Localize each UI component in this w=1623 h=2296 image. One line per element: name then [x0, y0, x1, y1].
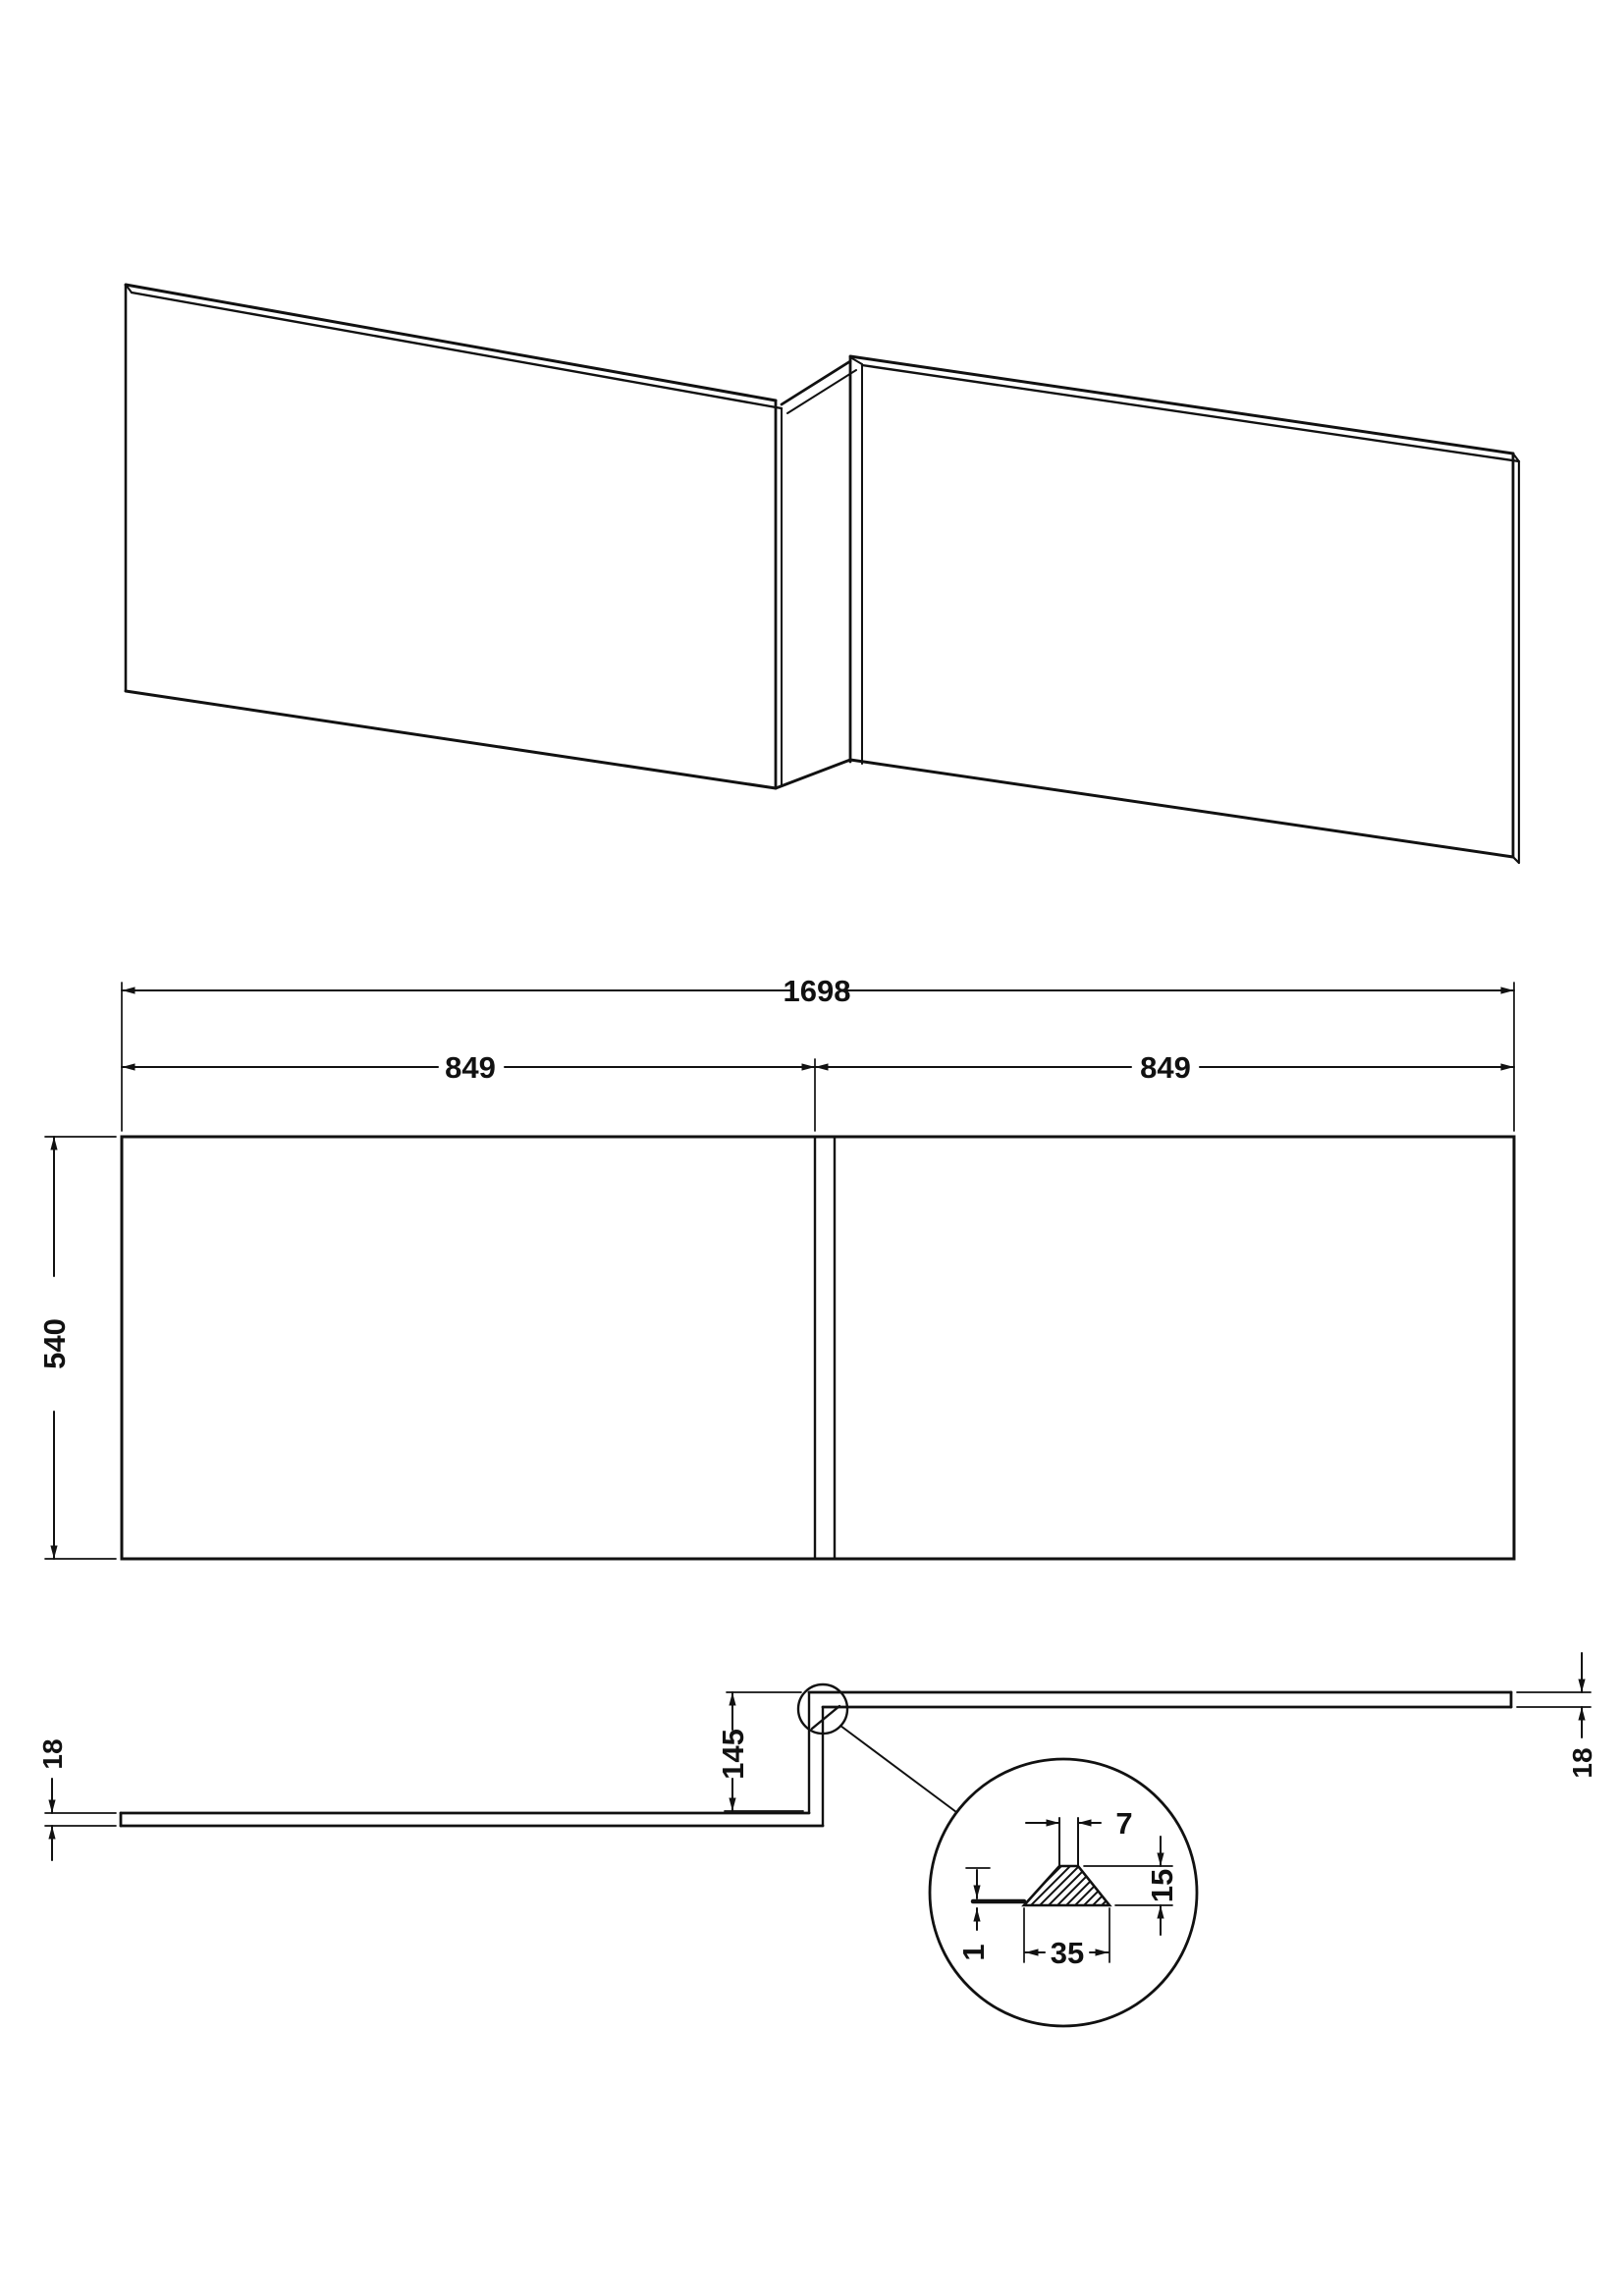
elevation-panel-outline: [122, 1137, 1514, 1559]
detail-view-labels: 7 15 35 1: [956, 1806, 1179, 1970]
dim-label-block-width: 35: [1051, 1936, 1084, 1970]
front-elevation-labels: 1698 849 849 540: [37, 974, 1191, 1369]
dim-label-right-panel-width: 849: [1140, 1050, 1191, 1085]
dim-label-block-height: 15: [1145, 1869, 1179, 1902]
dim-label-overall-width: 1698: [784, 974, 851, 1008]
dim-label-return-depth: 145: [716, 1729, 750, 1780]
technical-drawing-canvas: 1698 849 849 540: [0, 0, 1623, 2296]
plan-view: [45, 1653, 1591, 1860]
front-elevation-view: [45, 983, 1514, 1559]
dim-label-right-thickness: 18: [1567, 1747, 1597, 1778]
dim-label-height: 540: [37, 1318, 72, 1369]
drawing-sheet: 1698 849 849 540: [0, 0, 1623, 2296]
dim-label-top-gap: 7: [1115, 1806, 1132, 1841]
dim-label-left-thickness: 18: [37, 1738, 68, 1769]
dim-label-left-panel-width: 849: [445, 1050, 496, 1085]
dim-label-edge-offset: 1: [956, 1944, 991, 1960]
plan-view-labels: 18 18 145: [37, 1729, 1597, 1780]
detail-leader-line: [840, 1726, 956, 1812]
iso-view: [126, 285, 1519, 863]
